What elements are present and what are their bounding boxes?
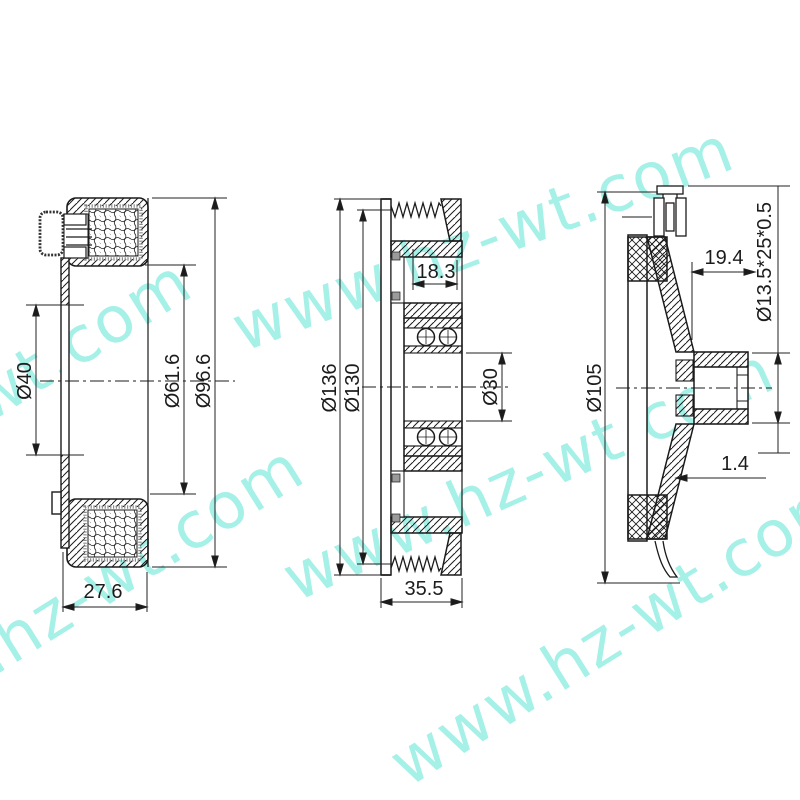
bearing-housing-bottom [404,456,462,471]
dim-label-pulley-groove: Ø130 [342,364,364,413]
dim-label-shaft-spec: Ø13.5*25*0.5 [754,202,776,322]
coil-connector [40,212,63,255]
bearing-bottom [404,421,462,456]
dim-plate-thickness: 1.4 [676,453,766,481]
dim-label-pulley-hub-width: 18.3 [417,261,456,283]
dim-label-hub-outer: Ø105 [584,364,606,413]
bearing-housing-top [404,303,462,318]
belt-grooves-top [391,203,441,217]
technical-drawing: www.hz-wt.com www.hz-wt.com www.hz-wt.co… [0,0,800,800]
drawing-canvas: www.hz-wt.com www.hz-wt.com www.hz-wt.co… [0,0,800,800]
dim-label-pulley-bore: Ø30 [480,368,502,406]
bearing-top [404,318,462,353]
limiter-bottom [676,395,693,416]
dim-label-pulley-outer: Ø136 [319,364,341,413]
dim-label-plate-thickness: 1.4 [721,453,749,475]
hub-web-top [647,237,694,352]
dim-label-coil-outer: Ø96.6 [193,354,215,408]
dim-label-pulley-width: 35.5 [405,578,444,600]
pulley-web-top [391,241,462,257]
dim-label-coil-depth: 27.6 [84,581,123,603]
limiter-top [676,360,693,381]
mount-tab [52,492,61,514]
dim-pulley-width: 35.5 [381,578,462,608]
dim-label-coil-bore: Ø40 [14,362,36,400]
watermark-text: www.hz-wt.com [0,430,317,773]
dim-label-coil-inner: Ø61.6 [162,354,184,408]
dim-label-hub-protrusion: 19.4 [705,247,744,269]
dim-hub-protrusion: 19.4 [692,247,755,340]
coil-bottom-winding [88,510,137,557]
coil-top-winding [89,209,138,256]
pulley-web-bottom [391,517,462,533]
